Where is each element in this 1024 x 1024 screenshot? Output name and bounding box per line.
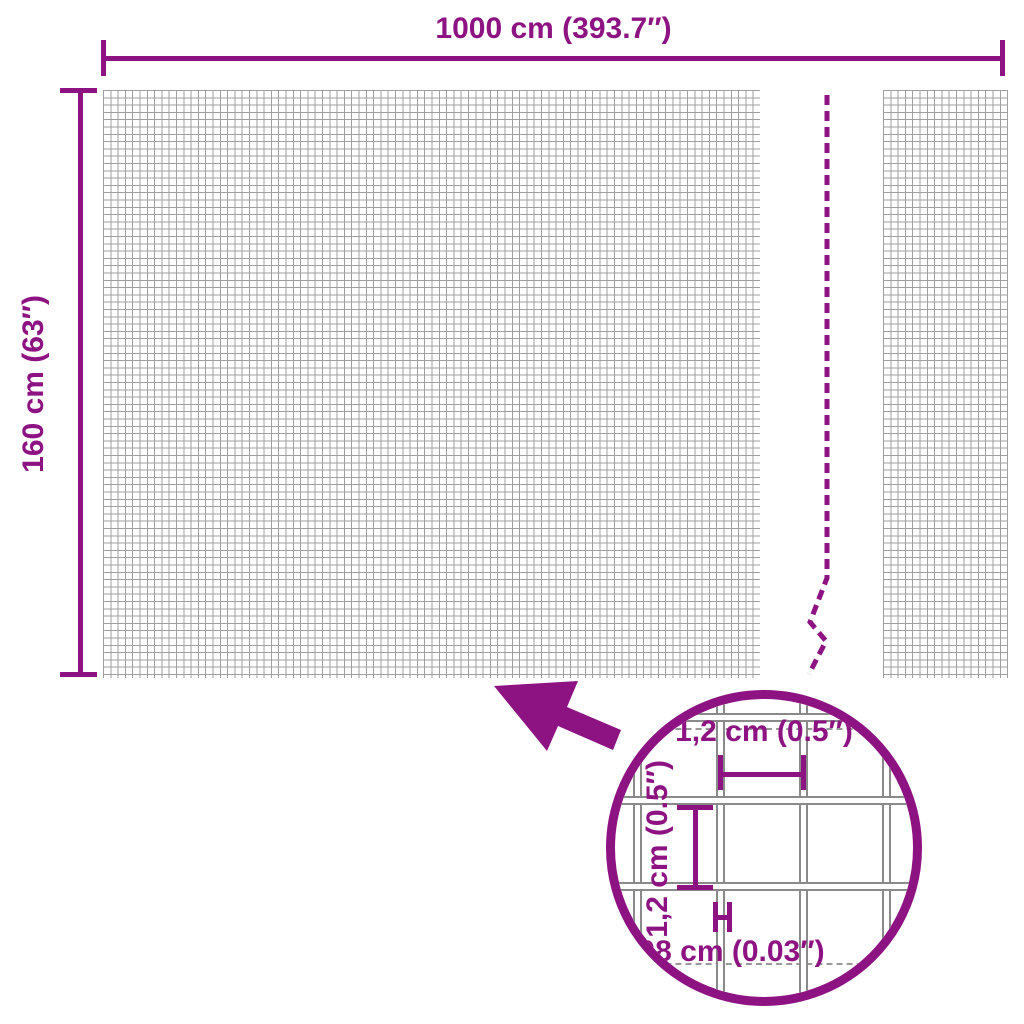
opening-height-bottom-cap xyxy=(677,885,713,890)
height-dimension-label-wrap: 160 cm (63″) xyxy=(10,90,58,678)
width-dimension-label: 1000 cm (393.7″) xyxy=(103,14,1004,44)
panel-break-line xyxy=(809,95,827,674)
detail-magnifier-circle: 1,2 cm (0.5″) 1,2 cm (0.5″) 0,08 cm (0.0… xyxy=(606,690,922,1006)
opening-width-left-cap xyxy=(718,755,723,790)
height-dimension-line xyxy=(78,90,83,677)
wire-thickness-label: 0,08 cm (0.03″) xyxy=(606,937,834,967)
opening-width-right-cap xyxy=(801,755,806,790)
opening-height-label: 1,2 cm (0.5″) xyxy=(643,760,673,938)
height-dimension-label: 160 cm (63″) xyxy=(19,295,49,473)
product-dimension-diagram: 1000 cm (393.7″) 160 cm (63″) xyxy=(0,0,1024,1024)
opening-height-top-cap xyxy=(677,805,713,810)
width-dimension-left-cap xyxy=(101,40,106,76)
wire-thickness-bar xyxy=(713,915,732,920)
height-dimension-top-cap xyxy=(60,88,97,93)
width-dimension-right-cap xyxy=(1000,40,1005,76)
zoom-arrow-icon xyxy=(494,681,621,751)
height-dimension-bottom-cap xyxy=(60,672,97,677)
opening-width-label: 1,2 cm (0.5″) xyxy=(615,717,913,747)
mesh-panel-left xyxy=(103,90,760,678)
mesh-panel-right xyxy=(883,90,1008,678)
opening-width-line xyxy=(720,772,803,777)
width-dimension-line xyxy=(103,56,1004,61)
opening-height-label-wrap: 1,2 cm (0.5″) xyxy=(639,751,677,946)
opening-height-line xyxy=(693,807,698,889)
